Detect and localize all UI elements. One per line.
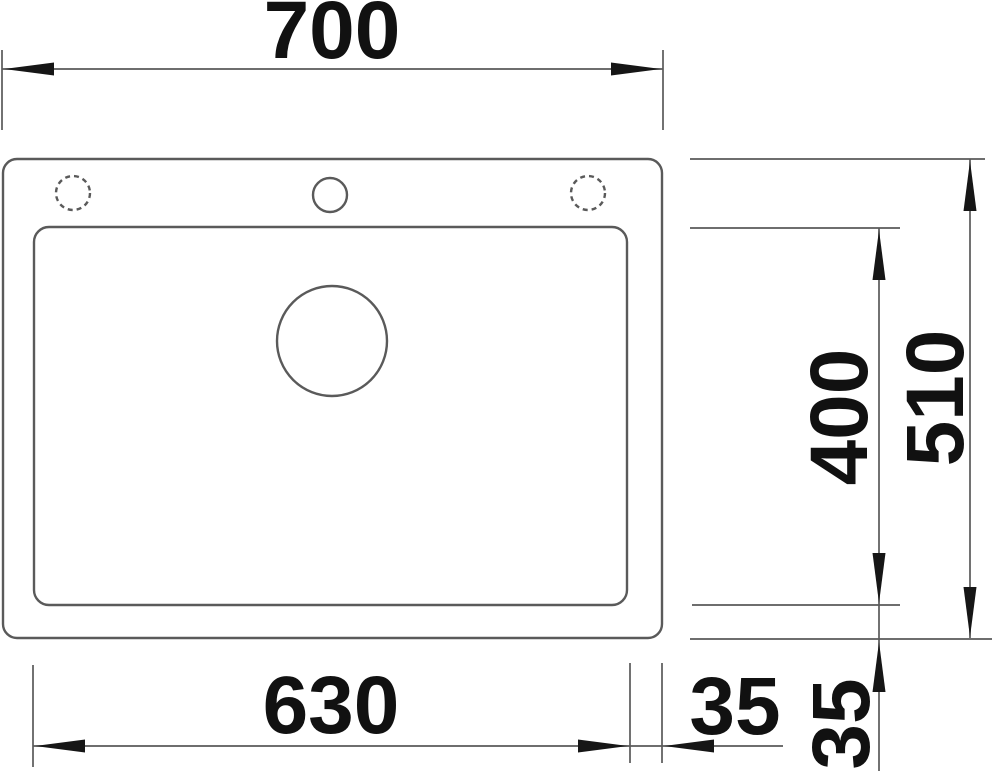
dimension-label-bowl-width: 630	[263, 660, 400, 751]
sink-outer-rim	[3, 159, 662, 638]
arrowhead-right	[611, 63, 661, 76]
dimension-label-right-margin: 35	[689, 661, 780, 752]
dimension-bottom-margin: 35	[796, 642, 887, 770]
tap-hole-large-circle	[277, 286, 387, 396]
dimension-right-margin: 35	[664, 661, 781, 753]
arrowhead-left	[4, 63, 54, 76]
arrowhead-right	[578, 740, 628, 753]
drawing-canvas: 700 510 400 35	[0, 0, 992, 771]
dimension-bowl-width: 630	[33, 660, 783, 767]
sink-dimension-diagram: 700 510 400 35	[0, 0, 992, 771]
dimension-label-overall-depth: 510	[890, 330, 981, 467]
arrowhead-up	[964, 161, 977, 211]
dimension-label-bowl-depth: 400	[794, 349, 885, 486]
arrowhead-left	[35, 740, 85, 753]
faucet-hole-center	[313, 178, 347, 212]
faucet-hole-left-dashed	[56, 176, 90, 210]
dimension-overall-width: 700	[2, 0, 663, 130]
sink-bowl-edge	[34, 227, 627, 605]
dimension-label-overall-width: 700	[264, 0, 401, 76]
sink-body	[3, 159, 662, 638]
arrowhead-up	[873, 230, 886, 280]
faucet-hole-right-dashed	[571, 176, 605, 210]
dimension-label-bottom-margin: 35	[796, 678, 887, 769]
arrowhead-down	[964, 587, 977, 637]
arrowhead-down	[873, 553, 886, 603]
